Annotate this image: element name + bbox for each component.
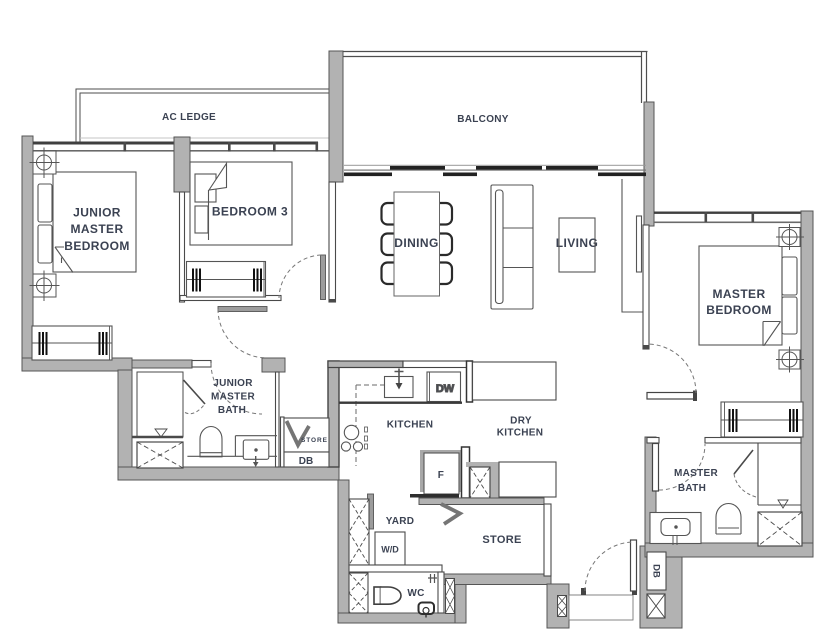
svg-text:MASTER: MASTER xyxy=(712,287,765,301)
svg-text:BEDROOM: BEDROOM xyxy=(64,239,129,253)
svg-text:STORE: STORE xyxy=(482,534,521,546)
svg-text:BALCONY: BALCONY xyxy=(457,114,509,125)
svg-text:YARD: YARD xyxy=(386,516,415,527)
svg-text:STORE: STORE xyxy=(301,437,328,444)
svg-text:MASTER: MASTER xyxy=(674,468,718,479)
svg-text:DINING: DINING xyxy=(394,236,438,250)
svg-text:WC: WC xyxy=(407,588,424,599)
svg-text:DW: DW xyxy=(436,383,455,395)
svg-text:KITCHEN: KITCHEN xyxy=(387,420,434,431)
svg-text:W/D: W/D xyxy=(381,545,399,555)
svg-text:JUNIOR: JUNIOR xyxy=(73,206,121,220)
svg-text:DB: DB xyxy=(651,564,662,578)
svg-text:LIVING: LIVING xyxy=(556,236,598,250)
svg-text:BATH: BATH xyxy=(218,405,246,416)
svg-text:DB: DB xyxy=(299,456,313,467)
svg-text:DRY: DRY xyxy=(510,416,532,427)
svg-text:MASTER: MASTER xyxy=(70,222,123,236)
svg-text:KITCHEN: KITCHEN xyxy=(497,428,544,439)
svg-text:MASTER: MASTER xyxy=(211,392,255,403)
svg-text:JUNIOR: JUNIOR xyxy=(213,378,253,389)
svg-text:AC LEDGE: AC LEDGE xyxy=(162,112,216,123)
svg-text:BATH: BATH xyxy=(678,483,706,494)
svg-text:F: F xyxy=(438,470,444,481)
svg-text:BEDROOM 3: BEDROOM 3 xyxy=(212,205,288,219)
svg-text:BEDROOM: BEDROOM xyxy=(706,303,771,317)
